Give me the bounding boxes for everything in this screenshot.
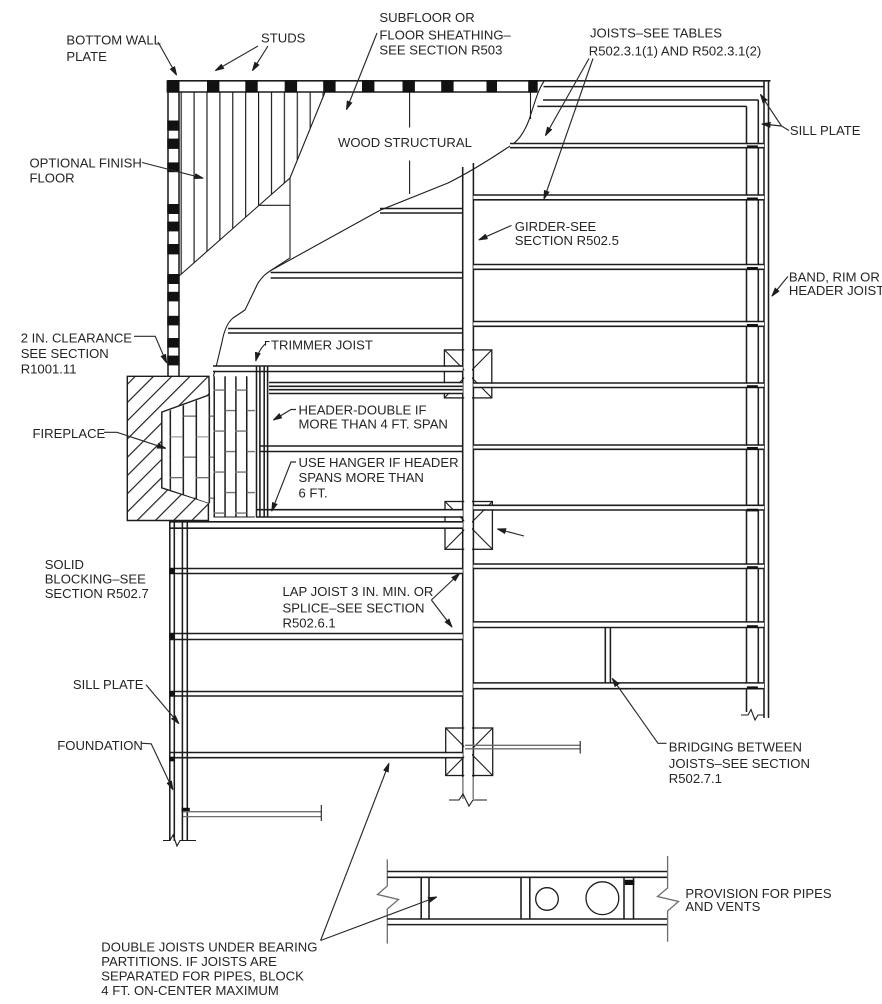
svg-text:R1001.11: R1001.11 [21,362,77,377]
svg-text:OPTIONAL FINISH: OPTIONAL FINISH [30,155,142,170]
svg-text:MORE THAN 4 FT. SPAN: MORE THAN 4 FT. SPAN [299,417,448,432]
svg-text:SUBFLOOR OR: SUBFLOOR OR [379,10,474,25]
svg-text:AND VENTS: AND VENTS [685,899,760,914]
svg-text:HEADER JOIST: HEADER JOIST [789,283,882,298]
svg-text:GIRDER-SEE: GIRDER-SEE [515,219,597,234]
svg-text:SEE SECTION: SEE SECTION [21,346,109,361]
svg-text:BOTTOM WALL: BOTTOM WALL [66,33,161,48]
svg-text:6 FT.: 6 FT. [299,485,328,500]
svg-text:DOUBLE JOISTS UNDER BEARING: DOUBLE JOISTS UNDER BEARING [101,939,317,954]
svg-text:BRIDGING BETWEEN: BRIDGING BETWEEN [669,740,802,755]
svg-text:BLOCKING–SEE: BLOCKING–SEE [45,572,146,587]
svg-text:USE HANGER IF HEADER: USE HANGER IF HEADER [299,455,459,470]
svg-text:FLOOR SHEATHING–: FLOOR SHEATHING– [379,28,511,43]
svg-text:PLATE: PLATE [66,49,107,64]
svg-text:LAP JOIST 3 IN. MIN. OR: LAP JOIST 3 IN. MIN. OR [283,584,434,599]
svg-text:R502.3.1(1) AND R502.3.1(2): R502.3.1(1) AND R502.3.1(2) [589,43,762,58]
svg-text:SECTION R502.7: SECTION R502.7 [45,586,149,601]
svg-text:FLOOR: FLOOR [30,170,75,185]
svg-text:FIREPLACE: FIREPLACE [33,426,106,441]
svg-text:4 FT. ON-CENTER MAXIMUM: 4 FT. ON-CENTER MAXIMUM [101,983,278,998]
svg-text:R502.7.1: R502.7.1 [669,771,722,786]
svg-text:SILL PLATE: SILL PLATE [73,677,144,692]
svg-text:2 IN. CLEARANCE: 2 IN. CLEARANCE [21,331,133,346]
svg-text:WOOD STRUCTURAL: WOOD STRUCTURAL [338,135,472,150]
svg-text:STUDS: STUDS [261,30,306,45]
svg-text:JOISTS–SEE TABLES: JOISTS–SEE TABLES [590,25,722,40]
svg-text:SEPARATED FOR PIPES, BLOCK: SEPARATED FOR PIPES, BLOCK [101,969,304,984]
svg-text:SOLID: SOLID [45,557,84,572]
svg-text:SEE SECTION R503: SEE SECTION R503 [379,42,502,57]
svg-text:R502.6.1: R502.6.1 [283,616,336,631]
svg-text:SPANS MORE THAN: SPANS MORE THAN [299,470,424,485]
svg-text:SILL PLATE: SILL PLATE [790,123,861,138]
svg-text:TRIMMER JOIST: TRIMMER JOIST [271,337,373,352]
svg-text:SPLICE–SEE SECTION: SPLICE–SEE SECTION [283,600,425,615]
svg-text:PARTITIONS. IF JOISTS ARE: PARTITIONS. IF JOISTS ARE [101,954,277,969]
svg-text:JOISTS–SEE SECTION: JOISTS–SEE SECTION [669,756,810,771]
svg-text:HEADER-DOUBLE IF: HEADER-DOUBLE IF [299,402,427,417]
svg-text:FOUNDATION: FOUNDATION [57,738,143,753]
svg-text:SECTION R502.5: SECTION R502.5 [515,233,619,248]
